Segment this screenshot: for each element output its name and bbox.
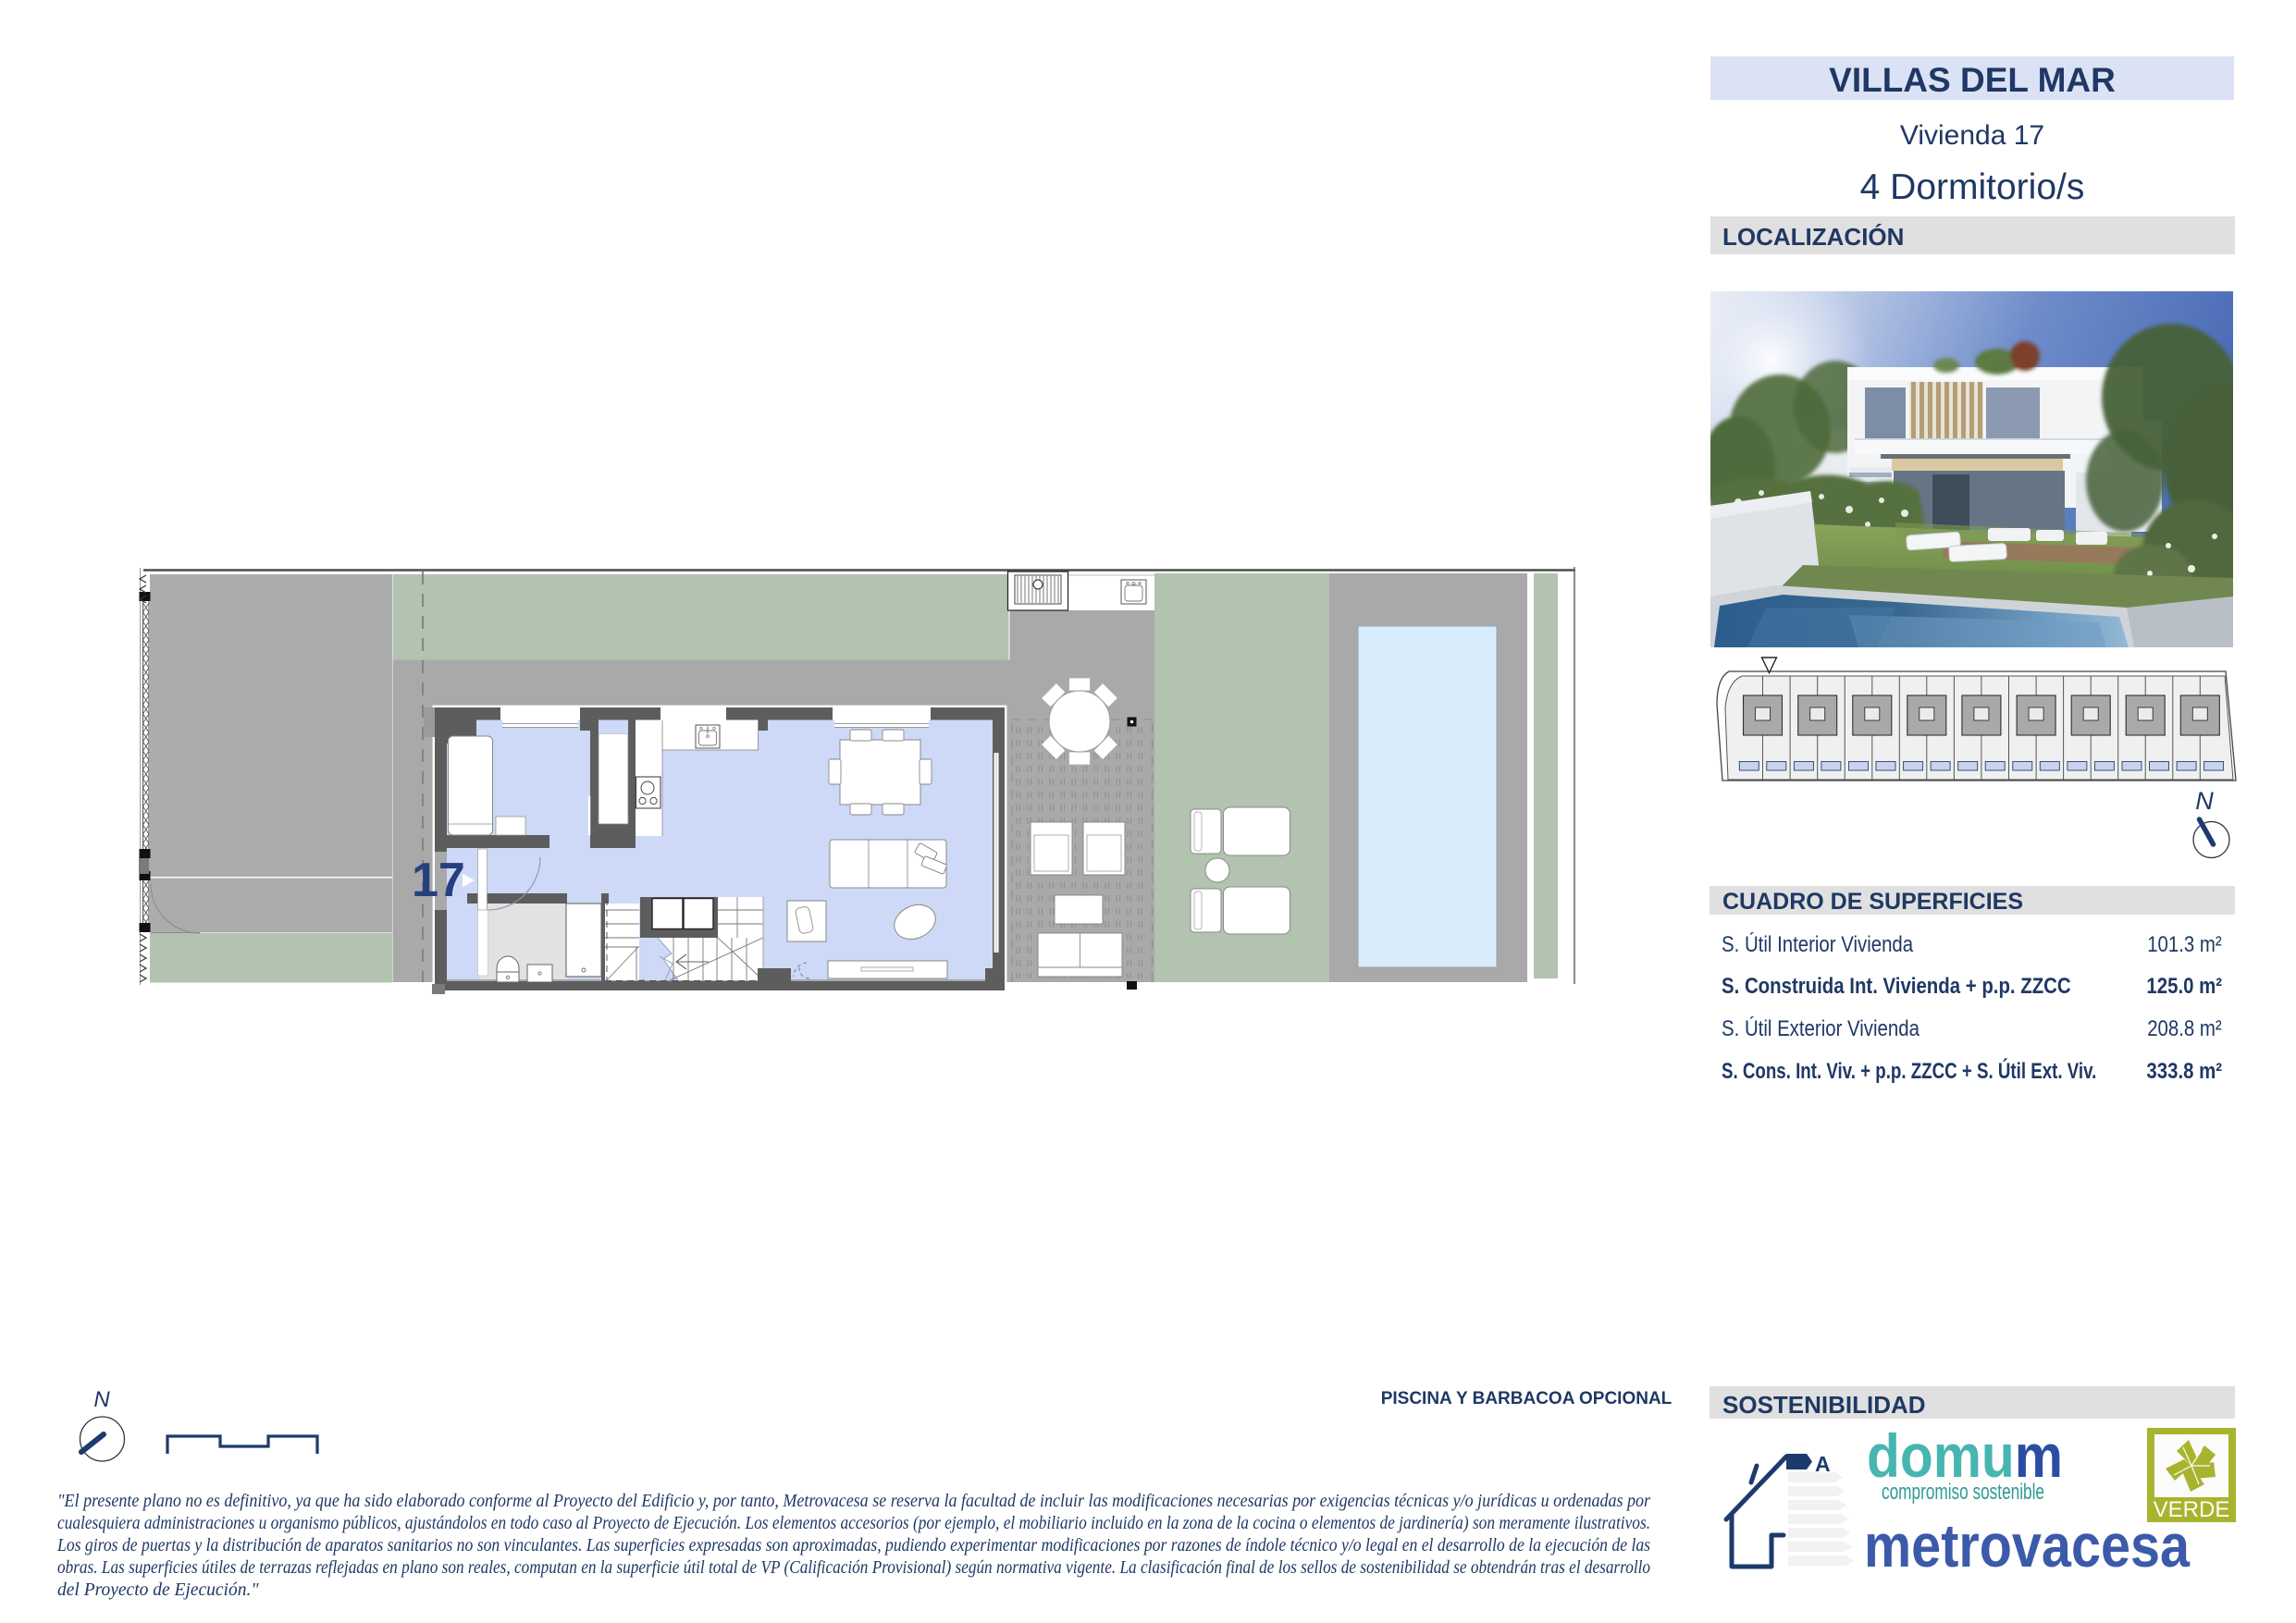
svg-text:N: N (2195, 787, 2214, 815)
svg-text:17: 17 (412, 854, 465, 907)
svg-text:A: A (1815, 1452, 1831, 1476)
svg-text:metrovacesa: metrovacesa (1864, 1511, 2191, 1580)
svg-text:VERDE: VERDE (2154, 1497, 2230, 1522)
svg-text:compromiso sostenible: compromiso sostenible (1882, 1480, 2044, 1505)
svg-text:N: N (93, 1387, 110, 1412)
